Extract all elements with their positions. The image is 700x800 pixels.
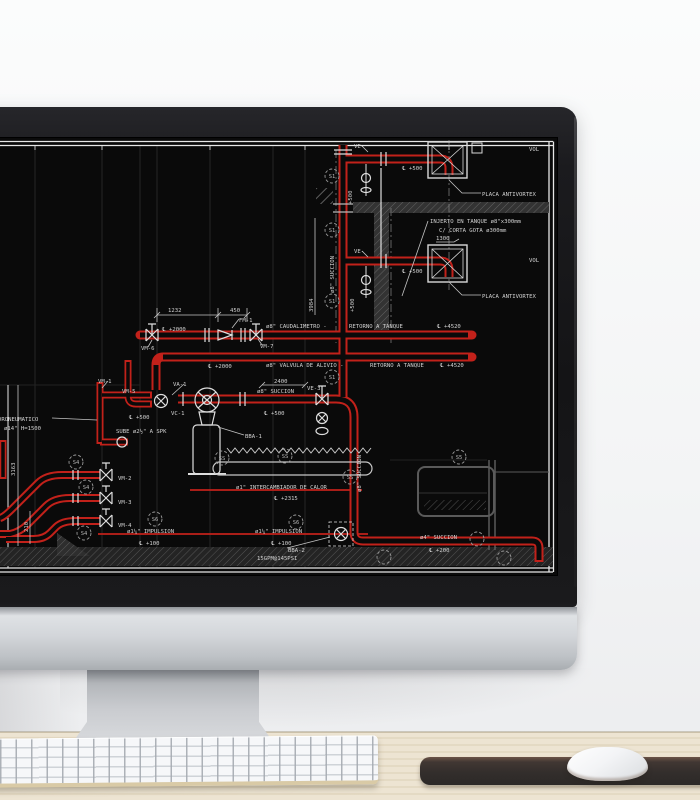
cad-label: ℄ +100	[138, 541, 159, 547]
cad-label: 1300	[436, 236, 449, 242]
cad-label: +500	[348, 191, 354, 204]
cad-label: ℄ +2000	[161, 327, 186, 333]
cad-label: ℄ +100	[270, 541, 291, 547]
cad-label: VM-2	[118, 476, 131, 482]
cad-label: VOL	[529, 258, 540, 264]
svg-text:S4: S4	[73, 460, 80, 466]
imac-monitor: S1S1S1S1S4S4S4S5S6S6SSSSSS VE-℄ +500VOLP…	[0, 107, 577, 670]
desk-scene: S1S1S1S1S4S4S4S5S6S6SSSSSS VE-℄ +500VOLP…	[0, 0, 700, 800]
monitor-screen: S1S1S1S1S4S4S4S5S6S6SSSSSS VE-℄ +500VOLP…	[0, 138, 557, 575]
cad-label: 3163	[11, 463, 17, 476]
cad-label: ℄ +2000	[207, 364, 232, 370]
cad-label: ø8" SUCCION	[330, 256, 336, 293]
cad-label: +500	[350, 299, 356, 312]
cad-label: RETORNO A TANQUE	[349, 324, 404, 330]
svg-text:SS: SS	[219, 456, 226, 462]
cad-label: DRONEUMATICO	[0, 417, 39, 423]
cad-label: VA-1	[173, 382, 186, 388]
concrete-hatch	[0, 188, 553, 566]
cad-label: ø8" VALVULA DE ALIVIO -	[266, 363, 343, 369]
cad-label: VM-6	[141, 346, 154, 352]
cad-label: VE-3	[307, 386, 320, 392]
cad-drawing: S1S1S1S1S4S4S4S5S6S6SSSSSS VE-℄ +500VOLP…	[0, 138, 557, 575]
cad-label: 2400	[274, 379, 287, 385]
cad-label: ℄ +4520	[436, 324, 461, 330]
svg-text:S1: S1	[329, 174, 336, 180]
section-bubble: S1	[325, 294, 339, 308]
monitor-chin	[0, 607, 577, 670]
cad-label: RETORNO A TANQUE	[370, 363, 425, 369]
cad-label: C/ CORTA GOTA ø300mm	[439, 228, 507, 234]
cad-label: SUBE ø2½" A SPK	[116, 428, 167, 435]
section-bubble: S6	[148, 512, 162, 526]
bezel-edge-highlight	[574, 117, 577, 587]
svg-text:S5: S5	[456, 455, 463, 461]
cad-label: ℄ +200	[428, 548, 449, 554]
cad-label: ø14" H=1500	[4, 426, 41, 432]
cad-label: PLACA ANTIVORTEX	[482, 294, 537, 300]
section-bubble: S6	[289, 515, 303, 529]
keyboard	[0, 735, 378, 787]
cad-label: VM-3	[118, 500, 131, 506]
svg-text:S6: S6	[293, 520, 300, 526]
cad-label: ø8" CAUDALIMETRO -	[266, 324, 327, 330]
cad-label: FM-1	[239, 318, 252, 324]
cad-label: ℄ +4520	[439, 363, 464, 369]
cad-label: ø4" SUCCION	[420, 535, 457, 541]
section-bubble: S1	[325, 223, 339, 237]
svg-text:SS: SS	[282, 454, 289, 460]
cad-label: ℄ +500	[401, 166, 422, 172]
mousepad	[420, 757, 700, 785]
section-bubble: S5	[452, 450, 466, 464]
section-bubble: S1	[325, 169, 339, 183]
mouse	[567, 747, 648, 781]
section-bubble: SS	[215, 451, 229, 465]
cad-label: ø1" INTERCAMBIADOR DE CALOR	[236, 485, 328, 491]
cad-label: 15GPM@145PSI	[257, 556, 297, 562]
svg-text:S1: S1	[329, 228, 336, 234]
cad-label: VOL	[529, 147, 540, 153]
cad-label: VC-1	[171, 411, 184, 417]
cad-label: 3984	[309, 298, 315, 312]
cad-label: 450	[230, 308, 240, 314]
cad-label: ℄ +500	[263, 411, 284, 417]
section-bubble: S1	[325, 370, 339, 384]
svg-text:SS: SS	[347, 475, 354, 481]
cad-label: PLACA ANTIVORTEX	[482, 192, 537, 198]
cad-label: BBA-2	[288, 548, 305, 554]
section-bubble: S4	[77, 526, 91, 540]
svg-text:S1: S1	[329, 375, 336, 381]
svg-text:S4: S4	[81, 531, 88, 537]
cad-label: VE-	[354, 144, 364, 150]
cad-label: ø1¼" IMPULSION	[255, 529, 302, 535]
cad-label: VE-	[354, 249, 364, 255]
section-bubble: S4	[69, 455, 83, 469]
cad-label: 210	[24, 522, 30, 532]
cad-label: ℄ +500	[128, 415, 149, 421]
cad-label: ø1¼" IMPULSION	[127, 529, 174, 535]
cad-label: ℄ +2315	[273, 496, 298, 502]
cad-label: ℄ +500	[401, 269, 422, 275]
cad-label: 1232	[168, 308, 181, 314]
cad-label: VM-1	[98, 379, 111, 385]
cad-label: VM-7	[260, 344, 273, 350]
section-bubble: S4	[79, 480, 93, 494]
cad-label: BBA-1	[245, 434, 262, 440]
cad-label: INJERTO EN TANQUE ø8"x300mm	[430, 219, 522, 225]
cad-label: ø8" SUCCION	[357, 455, 363, 492]
cad-label: VM-5	[122, 389, 135, 395]
svg-text:S4: S4	[83, 485, 90, 491]
svg-text:S6: S6	[152, 517, 159, 523]
cad-label: ø8" SUCCION	[257, 389, 294, 395]
svg-text:S1: S1	[329, 299, 336, 305]
monitor-stand	[73, 670, 273, 742]
